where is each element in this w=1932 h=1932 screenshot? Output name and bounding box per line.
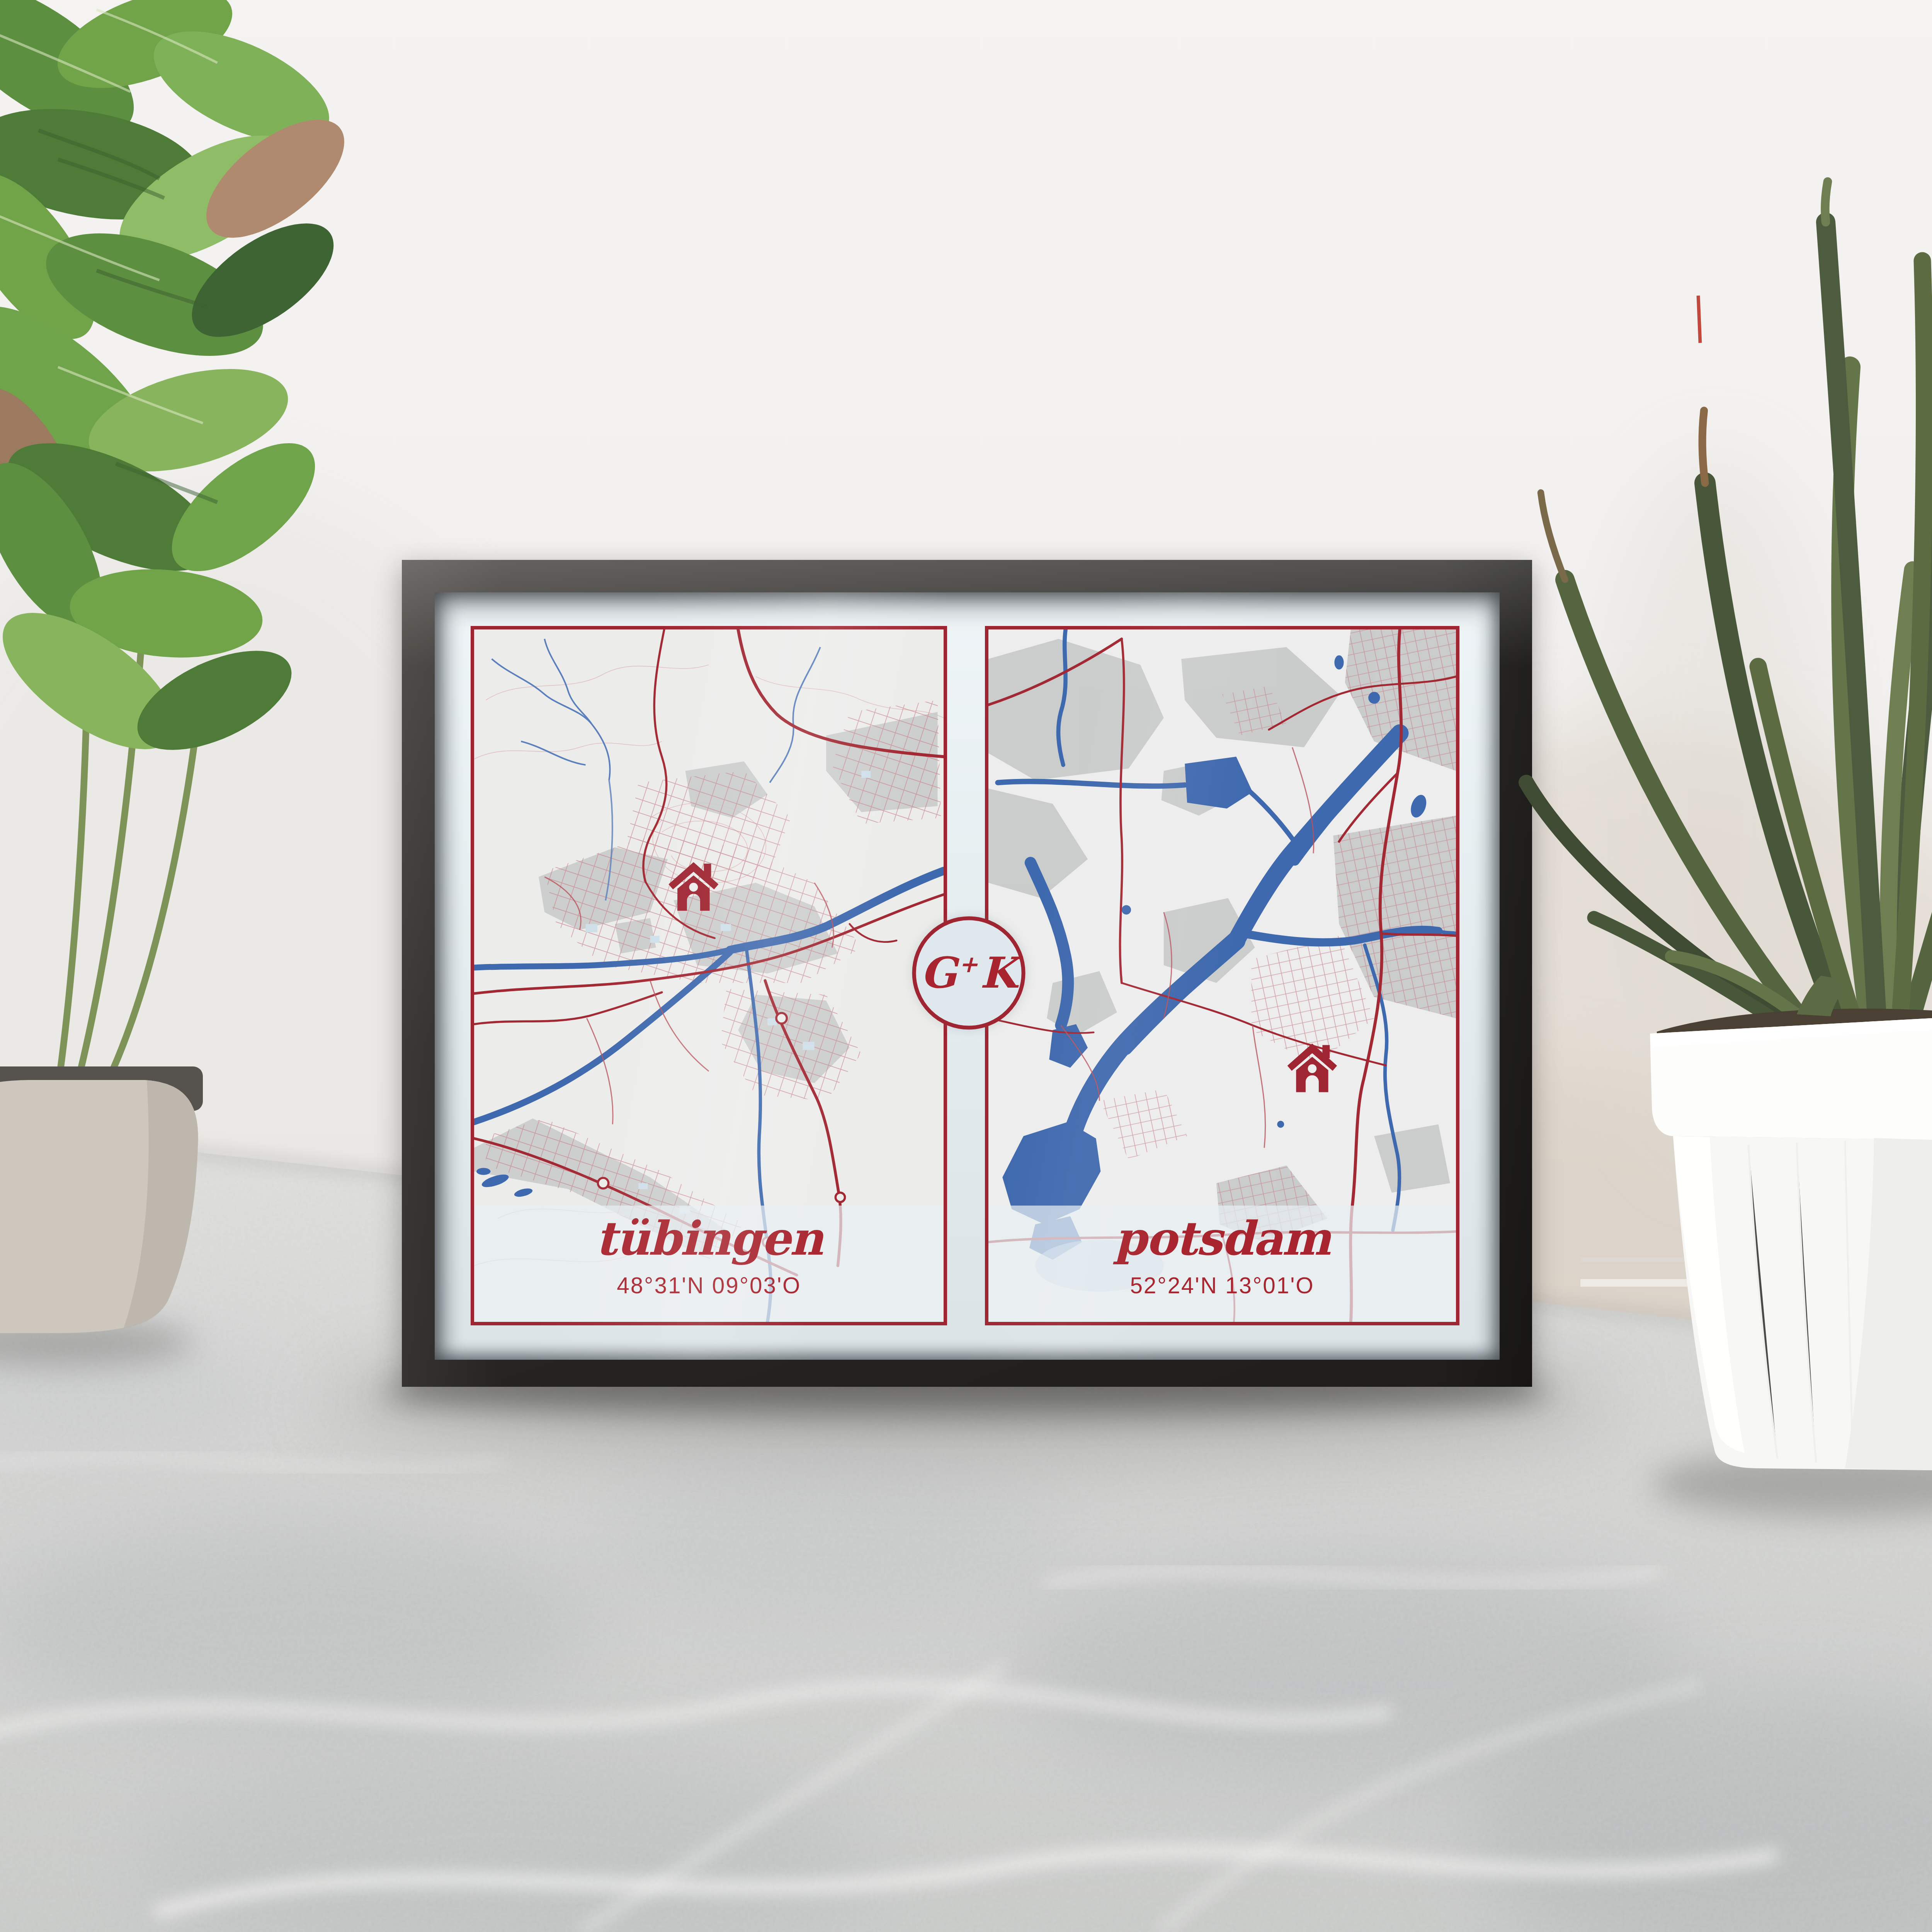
coordinates-label-potsdam: 52°24'N 13°01'O — [988, 1274, 1456, 1297]
plant-blades — [1526, 182, 1932, 1063]
coordinates-label-tuebingen: 48°31'N 09°03'O — [474, 1274, 944, 1297]
plant-leaves — [0, 0, 364, 775]
monogram-initial-left: G — [920, 952, 957, 994]
city-label-potsdam: potsdam — [988, 1215, 1456, 1262]
planter-pot-left — [0, 1066, 203, 1333]
monogram-plus: + — [959, 952, 978, 976]
map-panel-potsdam: potsdam 52°24'N 13°01'O — [985, 626, 1459, 1326]
leafy-plant-left — [0, 0, 367, 1372]
monogram-initial-right: K — [980, 952, 1017, 994]
city-label-tuebingen: tübingen — [474, 1215, 944, 1262]
monogram-badge: G + K — [912, 916, 1025, 1029]
map-poster: tübingen 48°31'N 09°03'O — [435, 592, 1500, 1360]
room-scene: tübingen 48°31'N 09°03'O — [0, 0, 1932, 1932]
spiky-plant-right — [1507, 164, 1932, 1488]
planter-pot-right — [1650, 976, 1932, 1470]
map-panel-tuebingen: tübingen 48°31'N 09°03'O — [471, 626, 947, 1326]
red-stem — [1698, 296, 1700, 343]
